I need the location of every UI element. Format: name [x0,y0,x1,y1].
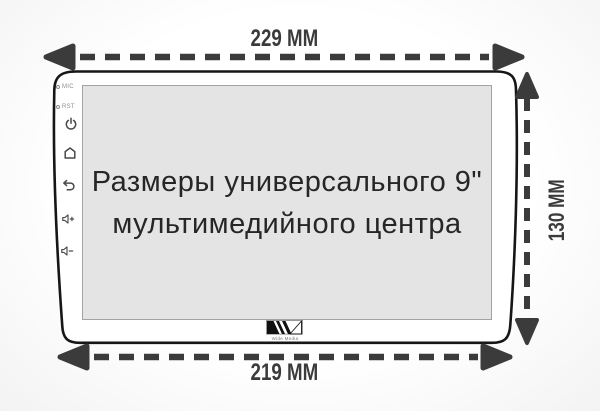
mic-label: MIC [62,84,74,90]
mic-row: MIC [56,84,74,90]
top-width-label: 229 MM [184,27,384,51]
back-icon [62,179,76,193]
rst-hole-icon [56,105,60,109]
brand-logo-mark-icon [266,320,304,335]
side-height-label: 130 MM [545,165,569,255]
brand-logo: Wide Media [261,320,309,341]
screen: Размеры универсального 9" мультимедийног… [82,85,492,320]
screen-caption: Размеры универсального 9" мультимедийног… [92,161,482,245]
rst-label: RST [62,104,75,110]
bottom-width-label: 219 MM [184,361,384,385]
caption-line-1: Размеры универсального 9" [92,161,482,203]
brand-logo-text: Wide Media [272,336,299,341]
volume-down-icon [60,244,74,258]
rst-row: RST [56,104,75,110]
head-unit-dimension-diagram: 229 MM 219 MM 130 MM Размеры универсальн… [0,0,600,411]
mic-hole-icon [56,85,60,89]
power-icon [64,117,78,131]
home-icon [63,146,77,160]
volume-up-icon [61,212,75,226]
side-height-arrow [517,74,537,343]
caption-line-2: мультимедийного центра [92,203,482,245]
